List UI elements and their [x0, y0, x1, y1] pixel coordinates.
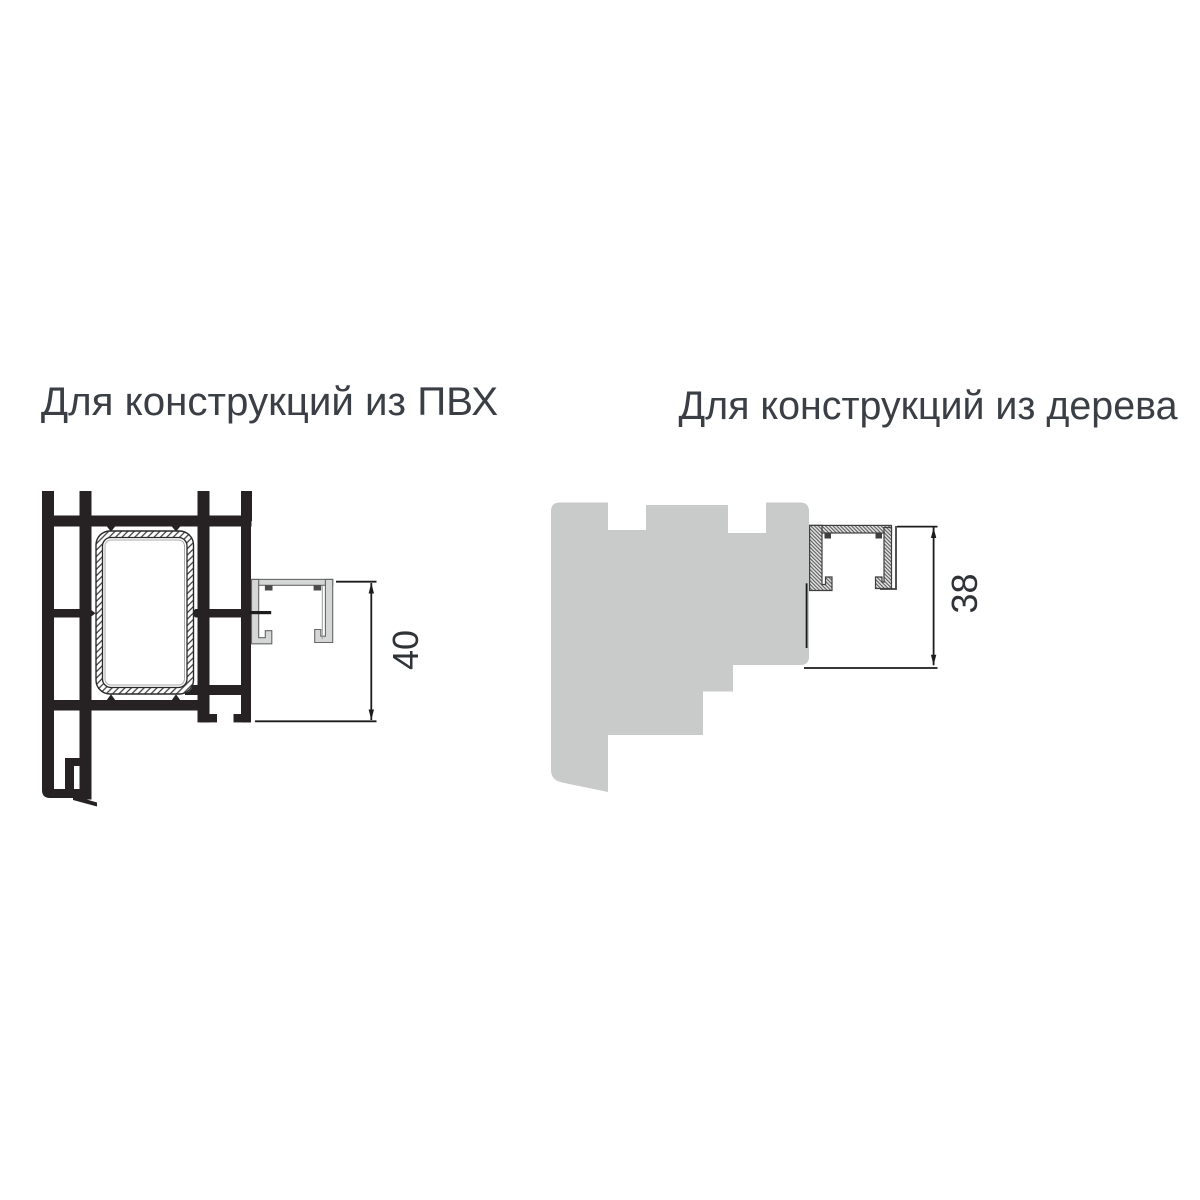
- svg-text:40: 40: [385, 630, 426, 670]
- svg-text:Для конструкций из ПВХ: Для конструкций из ПВХ: [41, 379, 498, 424]
- svg-text:Для конструкций из дерева: Для конструкций из дерева: [678, 384, 1177, 428]
- svg-text:38: 38: [944, 573, 985, 613]
